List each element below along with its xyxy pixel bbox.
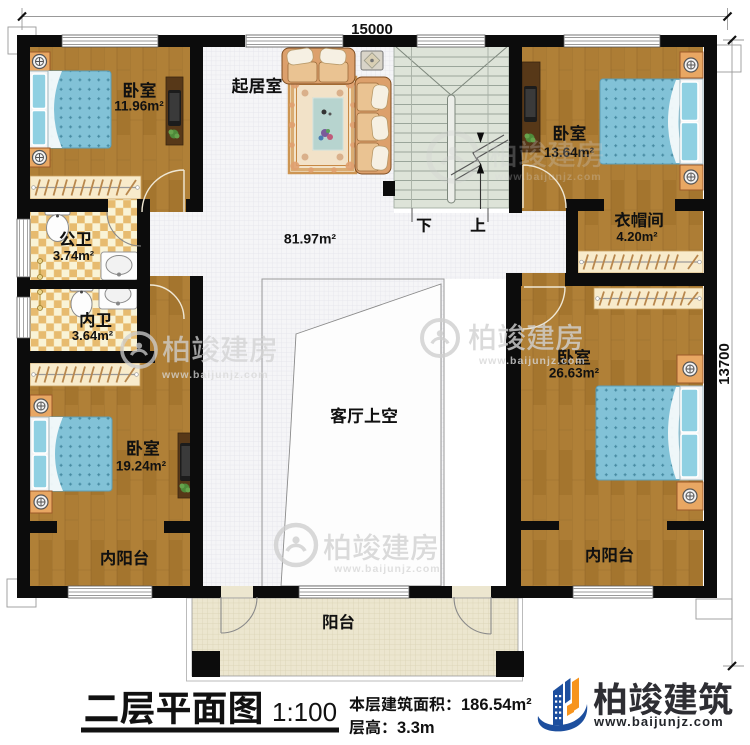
svg-text:3.3m: 3.3m xyxy=(397,719,435,737)
svg-text:1:100: 1:100 xyxy=(272,697,337,727)
svg-text:www.baijunjz.com: www.baijunjz.com xyxy=(161,369,269,381)
svg-text:3.64m²: 3.64m² xyxy=(72,328,114,343)
svg-text:www.baijunjz.com: www.baijunjz.com xyxy=(593,714,724,729)
svg-text:3.74m²: 3.74m² xyxy=(53,248,95,263)
svg-text:11.96m²: 11.96m² xyxy=(114,99,164,114)
svg-text:19.24m²: 19.24m² xyxy=(116,459,167,474)
svg-text:186.54m²: 186.54m² xyxy=(461,696,532,714)
svg-text:13700: 13700 xyxy=(716,343,733,385)
svg-text:26.63m²: 26.63m² xyxy=(549,366,600,381)
svg-text:81.97m²: 81.97m² xyxy=(284,231,336,247)
svg-text:4.20m²: 4.20m² xyxy=(616,229,658,244)
svg-text:www.baijunjz.com: www.baijunjz.com xyxy=(478,355,586,367)
svg-text:www.baijunjz.com: www.baijunjz.com xyxy=(333,563,441,575)
svg-text:www.baijunjz.com: www.baijunjz.com xyxy=(494,171,602,183)
svg-text:15000: 15000 xyxy=(351,21,393,38)
